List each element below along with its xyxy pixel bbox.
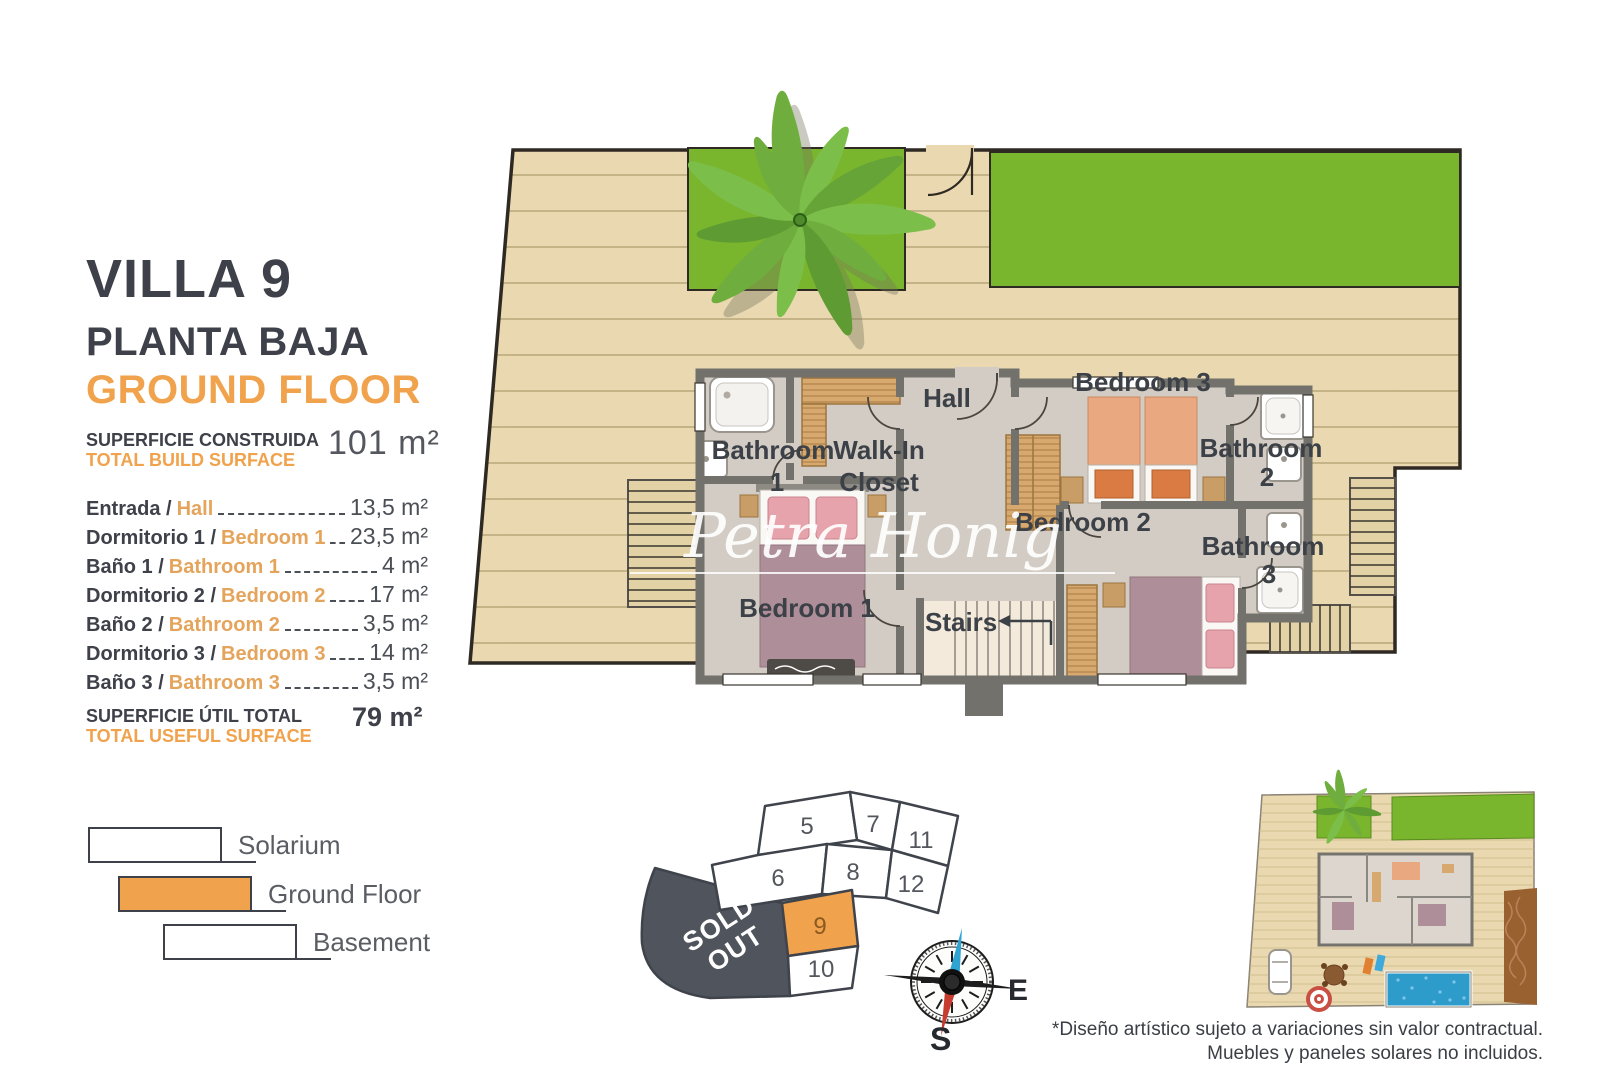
dashed-leader <box>285 571 377 573</box>
nightstand <box>1061 477 1083 503</box>
mini-site-plan <box>1212 752 1547 1017</box>
build-surface-labels: SUPERFICIE CONSTRUIDA TOTAL BUILD SURFAC… <box>86 430 319 470</box>
table-row: Dormitorio 1 /Bedroom 123,5 m² <box>86 521 428 550</box>
mini-lawn <box>1392 794 1534 840</box>
mini-pool <box>1386 972 1471 1007</box>
room-area: 4 m² <box>382 552 428 579</box>
mini-beds-orange <box>1392 862 1420 880</box>
room-name-en: Bathroom 3 <box>169 672 280 695</box>
useful-surface-label-en: TOTAL USEFUL SURFACE <box>86 726 312 746</box>
build-surface-label-es: SUPERFICIE CONSTRUIDA <box>86 430 319 450</box>
disclaimer-line1: *Diseño artístico sujeto a variaciones s… <box>903 1018 1543 1042</box>
dashed-leader <box>285 629 358 631</box>
page-title: VILLA 9 <box>86 248 292 310</box>
floor-plan-brochure: VILLA 9 PLANTA BAJA GROUND FLOOR SUPERFI… <box>0 0 1620 1080</box>
build-surface-value: 101 m² <box>328 424 440 463</box>
room-name-es: Entrada / <box>86 498 172 521</box>
room-label-bathroom2-num: 2 <box>1260 462 1274 492</box>
useful-surface-value: 79 m² <box>352 702 423 733</box>
mini-bed-1 <box>1332 902 1354 930</box>
house-bottom-tab <box>965 680 1003 716</box>
room-area: 3,5 m² <box>363 668 428 695</box>
useful-surface-labels: SUPERFICIE ÚTIL TOTAL TOTAL USEFUL SURFA… <box>86 706 312 746</box>
room-area: 17 m² <box>369 581 428 608</box>
nightstand <box>1203 477 1225 503</box>
mini-wardrobe <box>1442 864 1454 873</box>
room-name-es: Dormitorio 3 / <box>86 643 216 666</box>
room-label-hall: Hall <box>923 383 971 413</box>
room-area: 23,5 m² <box>350 523 428 550</box>
table-row: Dormitorio 2 /Bedroom 217 m² <box>86 579 428 608</box>
compass-east-label: E <box>1008 974 1028 1007</box>
build-surface-label-en: TOTAL BUILD SURFACE <box>86 450 319 470</box>
legend-box-ground-floor <box>118 876 252 912</box>
room-area: 13,5 m² <box>350 494 428 521</box>
room-label-bathroom3-num: 3 <box>1262 559 1276 589</box>
mini-wardrobe <box>1372 872 1381 902</box>
dashed-leader <box>330 542 345 544</box>
plot-number-7: 7 <box>866 811 879 838</box>
mini-house <box>1319 854 1472 945</box>
room-area: 3,5 m² <box>363 610 428 637</box>
plot-number-8: 8 <box>846 859 859 886</box>
exterior-stairs-right <box>1350 478 1395 595</box>
floor-title-es: PLANTA BAJA <box>86 320 369 365</box>
room-label-stairs: Stairs <box>925 607 997 637</box>
room-name-es: Baño 3 / <box>86 672 164 695</box>
table-row: Dormitorio 3 /Bedroom 314 m² <box>86 637 428 666</box>
mini-bed-2 <box>1418 904 1446 926</box>
legend-box-basement <box>163 924 297 960</box>
mini-dirt-area <box>1504 888 1537 1005</box>
room-label-bedroom1: Bedroom 1 <box>739 593 875 623</box>
mini-car <box>1269 950 1291 994</box>
mini-table-set <box>1321 963 1348 987</box>
room-name-en: Bedroom 3 <box>221 643 325 666</box>
room-name-es: Baño 2 / <box>86 614 164 637</box>
room-name-es: Dormitorio 1 / <box>86 527 216 550</box>
palm-trunk <box>794 214 806 226</box>
nightstand <box>1103 583 1125 607</box>
room-area: 14 m² <box>369 639 428 666</box>
legend-label-basement: Basement <box>313 927 430 958</box>
room-name-en: Bedroom 2 <box>221 585 325 608</box>
plot-number-6: 6 <box>771 865 784 892</box>
room-label-bathroom1: Bathroom <box>712 435 835 465</box>
table-row: Baño 2 /Bathroom 23,5 m² <box>86 608 428 637</box>
plot-number-10: 10 <box>808 956 835 983</box>
room-label-bathroom2: Bathroom <box>1200 433 1323 463</box>
room-name-en: Bathroom 1 <box>169 556 280 579</box>
room-name-en: Bathroom 2 <box>169 614 280 637</box>
useful-surface-label-es: SUPERFICIE ÚTIL TOTAL <box>86 706 312 726</box>
plot-number-9: 9 <box>813 913 826 940</box>
room-name-en: Hall <box>177 498 214 521</box>
plot-number-11: 11 <box>909 827 934 854</box>
bathtub <box>710 377 774 432</box>
dashed-leader <box>285 687 358 689</box>
lawn <box>990 152 1460 287</box>
petra-honig-watermark: Petra Honig <box>683 499 1062 572</box>
table-row: Entrada /Hall13,5 m² <box>86 492 428 521</box>
room-label-walk-in-closet: Walk-In <box>833 435 924 465</box>
bedroom2-bed <box>1130 577 1240 677</box>
room-label-bedroom3: Bedroom 3 <box>1075 367 1211 397</box>
room-name-es: Dormitorio 2 / <box>86 585 216 608</box>
area-table: Entrada /Hall13,5 m² Dormitorio 1 /Bedro… <box>86 492 428 695</box>
dashed-leader <box>330 600 364 602</box>
dashed-leader <box>218 513 345 515</box>
legend-label-ground-floor: Ground Floor <box>268 879 421 910</box>
room-name-es: Baño 1 / <box>86 556 164 579</box>
legend-label-solarium: Solarium <box>238 830 341 861</box>
room-label-bathroom1-num: 1 <box>770 467 784 497</box>
room-name-en: Bedroom 1 <box>221 527 325 550</box>
disclaimer: *Diseño artístico sujeto a variaciones s… <box>903 1018 1543 1066</box>
legend-box-solarium <box>88 827 222 863</box>
room-label-walk-in-closet: Closet <box>839 467 919 497</box>
dashed-leader <box>330 658 364 660</box>
floor-plan-drawing: Hall Walk-In Closet Bathroom 1 Bedroom 3… <box>455 45 1515 745</box>
table-row: Baño 3 /Bathroom 33,5 m² <box>86 666 428 695</box>
table-row: Baño 1 /Bathroom 14 m² <box>86 550 428 579</box>
disclaimer-line2: Muebles y paneles solares no incluidos. <box>903 1042 1543 1066</box>
mini-rug <box>1306 986 1332 1012</box>
floor-title-en: GROUND FLOOR <box>86 368 421 413</box>
room-label-bathroom3: Bathroom <box>1202 531 1325 561</box>
plot-number-5: 5 <box>800 813 813 840</box>
